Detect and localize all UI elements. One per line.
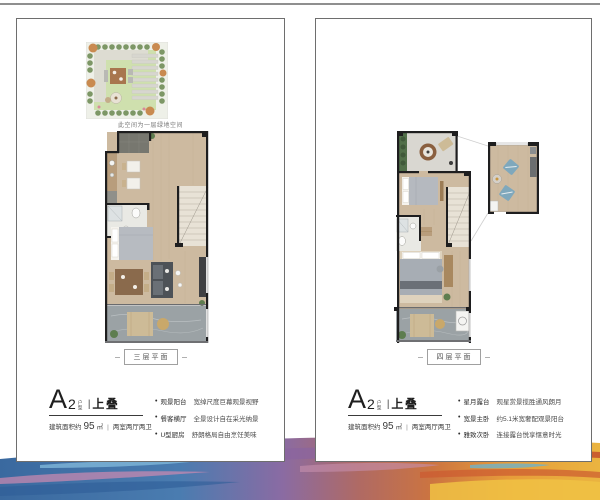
area-value: 95 [383,422,394,431]
feature-bullet: U型厨房 舒朗格局自由烹饪美味 [155,429,258,439]
unit-name: 上叠 [391,398,418,411]
unit-number: 2 [68,398,76,411]
garden-caption: 此空间为一层绿地空间 [17,120,284,129]
unit-separator: | [387,399,390,411]
bullet-head: 雅致次卧 [463,429,489,439]
feature-bullet: 星月露台 观星赏景揽胜通风朗月 [458,396,564,406]
loft-door-gap [494,212,506,214]
area-unit: ㎡ [396,421,403,431]
bullet-head: 观景阳台 [160,396,186,406]
area-unit: ㎡ [97,421,104,431]
bullet-head: U型厨房 [160,429,184,439]
bullet-desc: 约5.1米宽奢配观景阳台 [496,413,564,423]
area-value: 95 [84,422,95,431]
unit-type-small: 户型 [377,400,383,410]
balcony-rail [105,341,208,343]
feature-bullets: 观景阳台 宽绰尺度巨幕观景视野 餐客横厅 全景设计自在采光纳景 U型厨房 舒朗格… [155,396,258,446]
unit-title-block: A 2 户型 | 上叠 建筑面积约95㎡|两室两厅两卫 [49,388,159,431]
callout-line [457,136,488,146]
balcony [107,304,208,341]
dining-set [109,269,149,295]
brochure-panel-floor4: 四层平面 A 2 户型 | 上叠 建筑面积约95㎡|两室两厅两卫 星月露台 观星… [315,18,592,462]
area-prefix: 建筑面积约 [49,421,82,431]
bullet-desc: 舒朗格局自由烹饪美味 [192,429,257,439]
unit-letter: A [49,388,67,411]
area-separator: | [406,424,408,431]
unit-name: 上叠 [92,398,119,411]
floor-label-4: 四层平面 [316,349,591,365]
brochure-panel-floor3: 此空间为一层绿地空间 [16,18,285,462]
area-rooms: 两室两厅两卫 [113,421,152,431]
feature-bullet: 宽景主卧 约5.1米宽奢配观景阳台 [458,413,564,423]
bullet-head: 星月露台 [463,396,489,406]
bullet-desc: 全景设计自在采光纳景 [193,413,258,423]
bullet-desc: 观星赏景揽胜通风朗月 [496,396,561,406]
stairs [446,187,471,247]
garden-flower [98,106,101,109]
bullet-desc: 连接露台悦享惬意时光 [496,429,561,439]
feature-bullet: 雅致次卧 连接露台悦享惬意时光 [458,429,564,439]
area-line: 建筑面积约95㎡|两室两厅两卫 [49,421,159,431]
terrace-rail [396,340,471,342]
garden-plan-illustration [86,42,168,119]
floor-label-3: 三层平面 [17,349,284,365]
garden-flower [143,108,146,111]
unit-separator: | [88,399,91,411]
bullet-head: 餐客横厅 [160,413,186,423]
upper-terrace [399,133,456,171]
floorplan-level4 [394,131,541,346]
unit-title-block: A 2 户型 | 上叠 建筑面积约95㎡|两室两厅两卫 [348,388,458,431]
loft-room-callout [488,142,539,214]
area-separator: | [107,424,109,431]
feature-bullet: 餐客横厅 全景设计自在采光纳景 [155,413,258,423]
floor-label-text: 四层平面 [427,349,481,365]
lower-terrace [396,307,471,342]
unit-title: A 2 户型 | 上叠 [49,388,159,411]
bullet-desc: 宽绰尺度巨幕观景视野 [193,396,258,406]
unit-type-small: 户型 [78,400,84,410]
unit-underline [49,415,143,416]
unit-title: A 2 户型 | 上叠 [348,388,458,411]
bedroom-bed [111,227,153,260]
stairs [177,186,208,246]
area-prefix: 建筑面积约 [348,421,381,431]
unit-underline [348,415,442,416]
area-line: 建筑面积约95㎡|两室两厅两卫 [348,421,458,431]
feature-bullet: 观景阳台 宽绰尺度巨幕观景视野 [155,396,258,406]
area-rooms: 两室两厅两卫 [412,421,451,431]
bathroom [396,215,421,251]
page-top-rule [0,3,600,5]
floor-label-text: 三层平面 [124,349,178,365]
unit-letter: A [348,388,366,411]
master-bedroom [400,251,453,303]
feature-bullets: 星月露台 观星赏景揽胜通风朗月 宽景主卧 约5.1米宽奢配观景阳台 雅致次卧 连… [458,396,564,446]
unit-number: 2 [367,398,375,411]
callout-line [471,213,488,241]
bullet-head: 宽景主卧 [463,413,489,423]
floorplan-level3 [105,131,211,344]
